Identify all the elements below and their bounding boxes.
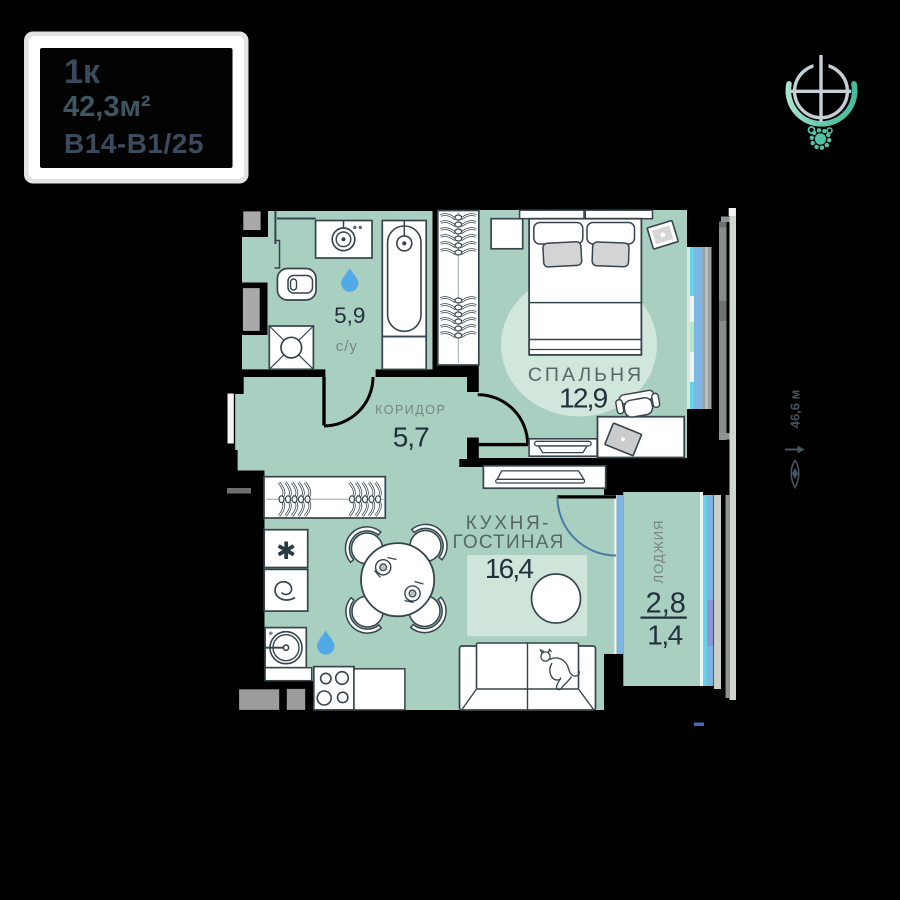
svg-text:1,4: 1,4 — [647, 620, 682, 651]
svg-text:КОРИДОР: КОРИДОР — [375, 403, 446, 417]
svg-text:ЛОДЖИЯ: ЛОДЖИЯ — [651, 520, 666, 584]
svg-text:2,8: 2,8 — [646, 588, 686, 620]
svg-text:5,9: 5,9 — [334, 303, 365, 328]
svg-text:5,7: 5,7 — [393, 422, 429, 453]
svg-text:✱: ✱ — [276, 538, 296, 565]
svg-text:ГОСТИНАЯ: ГОСТИНАЯ — [452, 532, 564, 553]
svg-text:46,6 м: 46,6 м — [788, 390, 803, 429]
svg-text:16,4: 16,4 — [485, 553, 534, 584]
svg-text:42,3м²: 42,3м² — [63, 91, 151, 123]
svg-text:1к: 1к — [64, 53, 101, 91]
svg-text:КУХНЯ-: КУХНЯ- — [466, 513, 551, 534]
svg-text:с/у: с/у — [336, 338, 358, 355]
svg-text:В14-В1/25: В14-В1/25 — [64, 128, 204, 159]
svg-text:12,9: 12,9 — [559, 383, 608, 414]
